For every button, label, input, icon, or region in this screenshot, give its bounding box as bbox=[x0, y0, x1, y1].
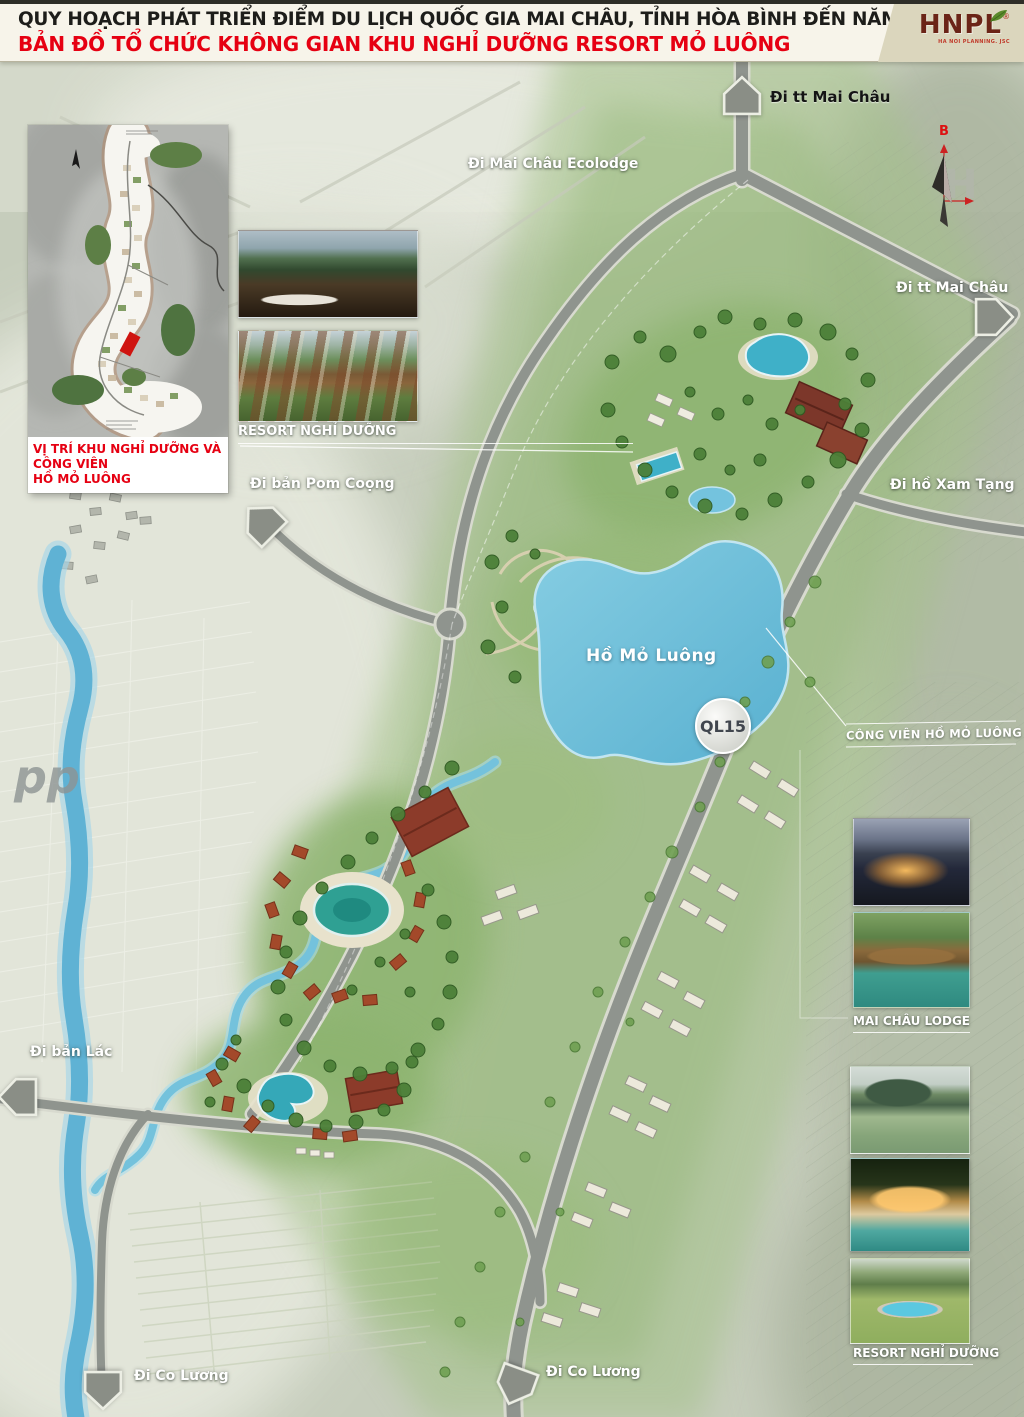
lake-label: Hồ Mỏ Luông bbox=[586, 646, 717, 666]
compass-north-label: B bbox=[912, 125, 976, 138]
direction-label-tt-mai-chau-right: Đi tt Mai Châu bbox=[896, 280, 1008, 296]
photo-lodge-pool-pavilion bbox=[853, 912, 970, 1008]
direction-label-ho-xam-tang: Đi hồ Xam Tạng bbox=[890, 477, 1015, 493]
inset-caption: VỊ TRÍ KHU NGHỈ DƯỠNG VÀ CÔNG VIÊN HỒ MỎ… bbox=[28, 437, 228, 493]
header-titles: QUY HOẠCH PHÁT TRIỂN ĐIỂM DU LỊCH QUỐC G… bbox=[18, 9, 956, 56]
direction-arrow-north-icon bbox=[721, 74, 763, 116]
right-bottom-strip-label: RESORT NGHỈ DƯỠNG bbox=[853, 1346, 973, 1365]
photo-lake-reflection bbox=[850, 1066, 970, 1154]
photo-field-pool bbox=[850, 1258, 970, 1344]
inset-caption-line2: HỒ MỎ LUÔNG bbox=[33, 472, 223, 487]
inset-location-map bbox=[28, 125, 228, 437]
route-badge-ql15: QL15 bbox=[695, 698, 751, 754]
map-area: pp H bbox=[0, 62, 1024, 1417]
inset-location-panel: VỊ TRÍ KHU NGHỈ DƯỠNG VÀ CÔNG VIÊN HỒ MỎ… bbox=[28, 125, 228, 493]
page-subtitle: BẢN ĐỒ TỔ CHỨC KHÔNG GIAN KHU NGHỈ DƯỠNG… bbox=[18, 32, 956, 56]
page-title: QUY HOẠCH PHÁT TRIỂN ĐIỂM DU LỊCH QUỐC G… bbox=[18, 9, 956, 30]
direction-arrow-east-icon bbox=[974, 296, 1016, 338]
direction-label-mai-chau-ecolodge: Đi Mai Châu Ecolodge bbox=[468, 156, 638, 172]
direction-label-ban-lac: Đi bản Lác bbox=[30, 1044, 112, 1060]
photo-night-pool-villa bbox=[850, 1158, 970, 1252]
photo-resort-terrace-view bbox=[238, 230, 418, 318]
right-top-strip-label: MAI CHÂU LODGE bbox=[853, 1014, 970, 1033]
compass: B bbox=[912, 125, 976, 235]
poster-page: QUY HOẠCH PHÁT TRIỂN ĐIỂM DU LỊCH QUỐC G… bbox=[0, 0, 1024, 1417]
compass-north-arrow-icon bbox=[912, 139, 976, 231]
direction-arrow-south-icon bbox=[82, 1370, 124, 1412]
inset-caption-line1: VỊ TRÍ KHU NGHỈ DƯỠNG VÀ CÔNG VIÊN bbox=[33, 442, 223, 472]
park-label: CÔNG VIÊN HỒ MỎ LUÔNG bbox=[846, 721, 1016, 748]
direction-label-co-luong-south: Đi Co Lương bbox=[546, 1364, 641, 1380]
photo-resort-bungalows bbox=[238, 330, 418, 422]
left-strip-label: RESORT NGHỈ DƯỠNG bbox=[238, 424, 633, 444]
direction-label-ban-pom-coong: Đi bản Pom Coọng bbox=[250, 476, 395, 492]
logo-panel: HNPL® HA NOI PLANNING. JSC bbox=[878, 4, 1024, 62]
direction-label-co-luong-west: Đi Co Lương bbox=[134, 1368, 229, 1384]
direction-arrow-west-icon bbox=[0, 1076, 38, 1118]
direction-label-tt-mai-chau-top: Đi tt Mai Châu bbox=[770, 88, 890, 106]
leaf-icon bbox=[988, 8, 1008, 24]
header: QUY HOẠCH PHÁT TRIỂN ĐIỂM DU LỊCH QUỐC G… bbox=[0, 0, 1024, 62]
photo-mai-chau-lodge-night bbox=[853, 818, 970, 906]
